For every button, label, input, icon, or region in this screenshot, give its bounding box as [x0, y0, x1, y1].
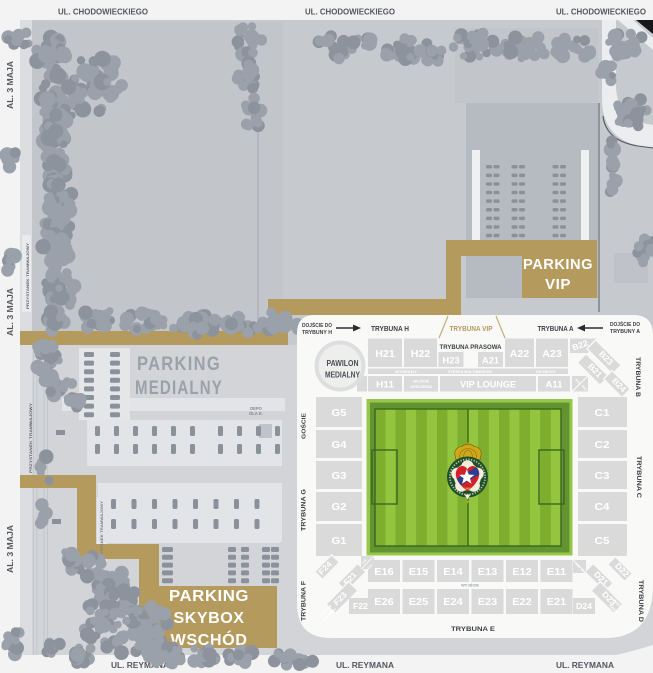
svg-text:E22: E22 [512, 596, 532, 608]
svg-text:E26: E26 [374, 596, 394, 608]
svg-text:TRYBUNA H: TRYBUNA H [371, 324, 409, 333]
svg-text:TRYBUNA B: TRYBUNA B [634, 357, 640, 398]
svg-text:C2: C2 [595, 439, 610, 451]
svg-text:ZAPROSZENIA: ZAPROSZENIA [410, 385, 432, 389]
svg-text:PRZYSTANEK TRAMWAJOWY: PRZYSTANEK TRAMWAJOWY [100, 500, 104, 563]
svg-text:UL. REYMANA: UL. REYMANA [556, 661, 614, 670]
svg-text:PARKING: PARKING [169, 588, 249, 605]
svg-text:E23: E23 [478, 596, 498, 608]
svg-text:A23: A23 [542, 348, 562, 360]
svg-text:H11: H11 [376, 380, 395, 391]
svg-text:WYWIADY: WYWIADY [395, 369, 417, 374]
svg-text:C3: C3 [595, 470, 610, 482]
svg-text:H23: H23 [443, 356, 460, 367]
svg-text:TRYBUNA PRASOWA: TRYBUNA PRASOWA [440, 345, 503, 351]
svg-text:TRYBUNA D: TRYBUNA D [637, 580, 643, 623]
svg-text:PRZYSTANEK TRAMWAJOWY: PRZYSTANEK TRAMWAJOWY [29, 402, 33, 473]
svg-text:SKYBOX: SKYBOX [174, 610, 245, 627]
svg-text:E24: E24 [443, 596, 463, 608]
svg-text:TRYBUNA VIP: TRYBUNA VIP [450, 324, 493, 333]
svg-text:G2: G2 [332, 501, 347, 513]
svg-text:MEDIALNY: MEDIALNY [325, 371, 361, 380]
svg-text:AL. 3 MAJA: AL. 3 MAJA [6, 288, 15, 336]
svg-text:DOJŚCIE DO: DOJŚCIE DO [610, 321, 640, 328]
svg-text:TRYBUNY H: TRYBUNY H [302, 330, 332, 336]
svg-text:DLA E.: DLA E. [249, 411, 263, 416]
svg-text:PRZYSTANEK TRAMWAJOWY: PRZYSTANEK TRAMWAJOWY [26, 242, 30, 309]
svg-text:A21: A21 [482, 356, 500, 367]
svg-text:C4: C4 [595, 501, 610, 513]
svg-text:TRYBUNY A: TRYBUNY A [610, 329, 640, 335]
svg-text:TRYBUNA G: TRYBUNA G [302, 489, 308, 531]
svg-text:G3: G3 [332, 470, 347, 482]
svg-text:C1: C1 [595, 407, 610, 419]
svg-text:UL. REYMANA: UL. REYMANA [336, 661, 394, 670]
svg-text:E11: E11 [547, 566, 567, 578]
svg-text:STREFA MULTIMEDIÓW: STREFA MULTIMEDIÓW [448, 369, 492, 374]
svg-text:E15: E15 [409, 566, 429, 578]
svg-text:SKYBOXY: SKYBOXY [536, 369, 556, 374]
svg-text:E25: E25 [409, 596, 429, 608]
svg-text:MEDIALNY: MEDIALNY [135, 378, 223, 399]
svg-text:A22: A22 [510, 348, 530, 360]
svg-text:WYJŚCIE: WYJŚCIE [461, 583, 479, 588]
svg-text:DOJŚCIE DO: DOJŚCIE DO [302, 322, 332, 329]
svg-text:E13: E13 [478, 566, 498, 578]
svg-text:D24: D24 [576, 602, 593, 611]
svg-text:A11: A11 [546, 380, 564, 391]
svg-text:G5: G5 [332, 407, 347, 419]
svg-text:E16: E16 [374, 566, 394, 578]
svg-text:UL. CHODOWIECKIEGO: UL. CHODOWIECKIEGO [556, 8, 646, 17]
svg-text:G1: G1 [332, 535, 347, 547]
svg-text:E14: E14 [443, 566, 463, 578]
svg-text:TRYBUNA F: TRYBUNA F [302, 581, 308, 621]
svg-text:TRYBUNA E: TRYBUNA E [451, 626, 496, 633]
svg-text:E12: E12 [512, 566, 532, 578]
svg-text:H21: H21 [375, 348, 395, 360]
svg-text:E21: E21 [547, 596, 567, 608]
svg-text:VIP: VIP [545, 277, 571, 293]
svg-text:PAWILON: PAWILON [327, 359, 359, 368]
svg-text:GOŚCIE: GOŚCIE [301, 413, 308, 439]
svg-text:H22: H22 [411, 348, 431, 360]
svg-text:F22: F22 [353, 602, 369, 611]
svg-text:TRYBUNA C: TRYBUNA C [635, 456, 641, 499]
svg-text:VIP LOUNGE: VIP LOUNGE [460, 380, 516, 391]
svg-text:1906: 1906 [464, 487, 471, 491]
svg-text:C5: C5 [595, 535, 610, 547]
svg-text:UL. CHODOWIECKIEGO: UL. CHODOWIECKIEGO [305, 8, 395, 17]
svg-text:TRYBUNA A: TRYBUNA A [538, 324, 574, 333]
svg-text:WEJŚCIE: WEJŚCIE [413, 379, 429, 384]
svg-text:PARKING: PARKING [137, 354, 221, 375]
svg-text:PARKING: PARKING [523, 257, 593, 273]
svg-text:AL. 3 MAJA: AL. 3 MAJA [6, 61, 15, 109]
svg-text:UL. CHODOWIECKIEGO: UL. CHODOWIECKIEGO [58, 8, 148, 17]
svg-text:G4: G4 [332, 439, 347, 451]
svg-text:AL. 3 MAJA: AL. 3 MAJA [6, 525, 15, 573]
